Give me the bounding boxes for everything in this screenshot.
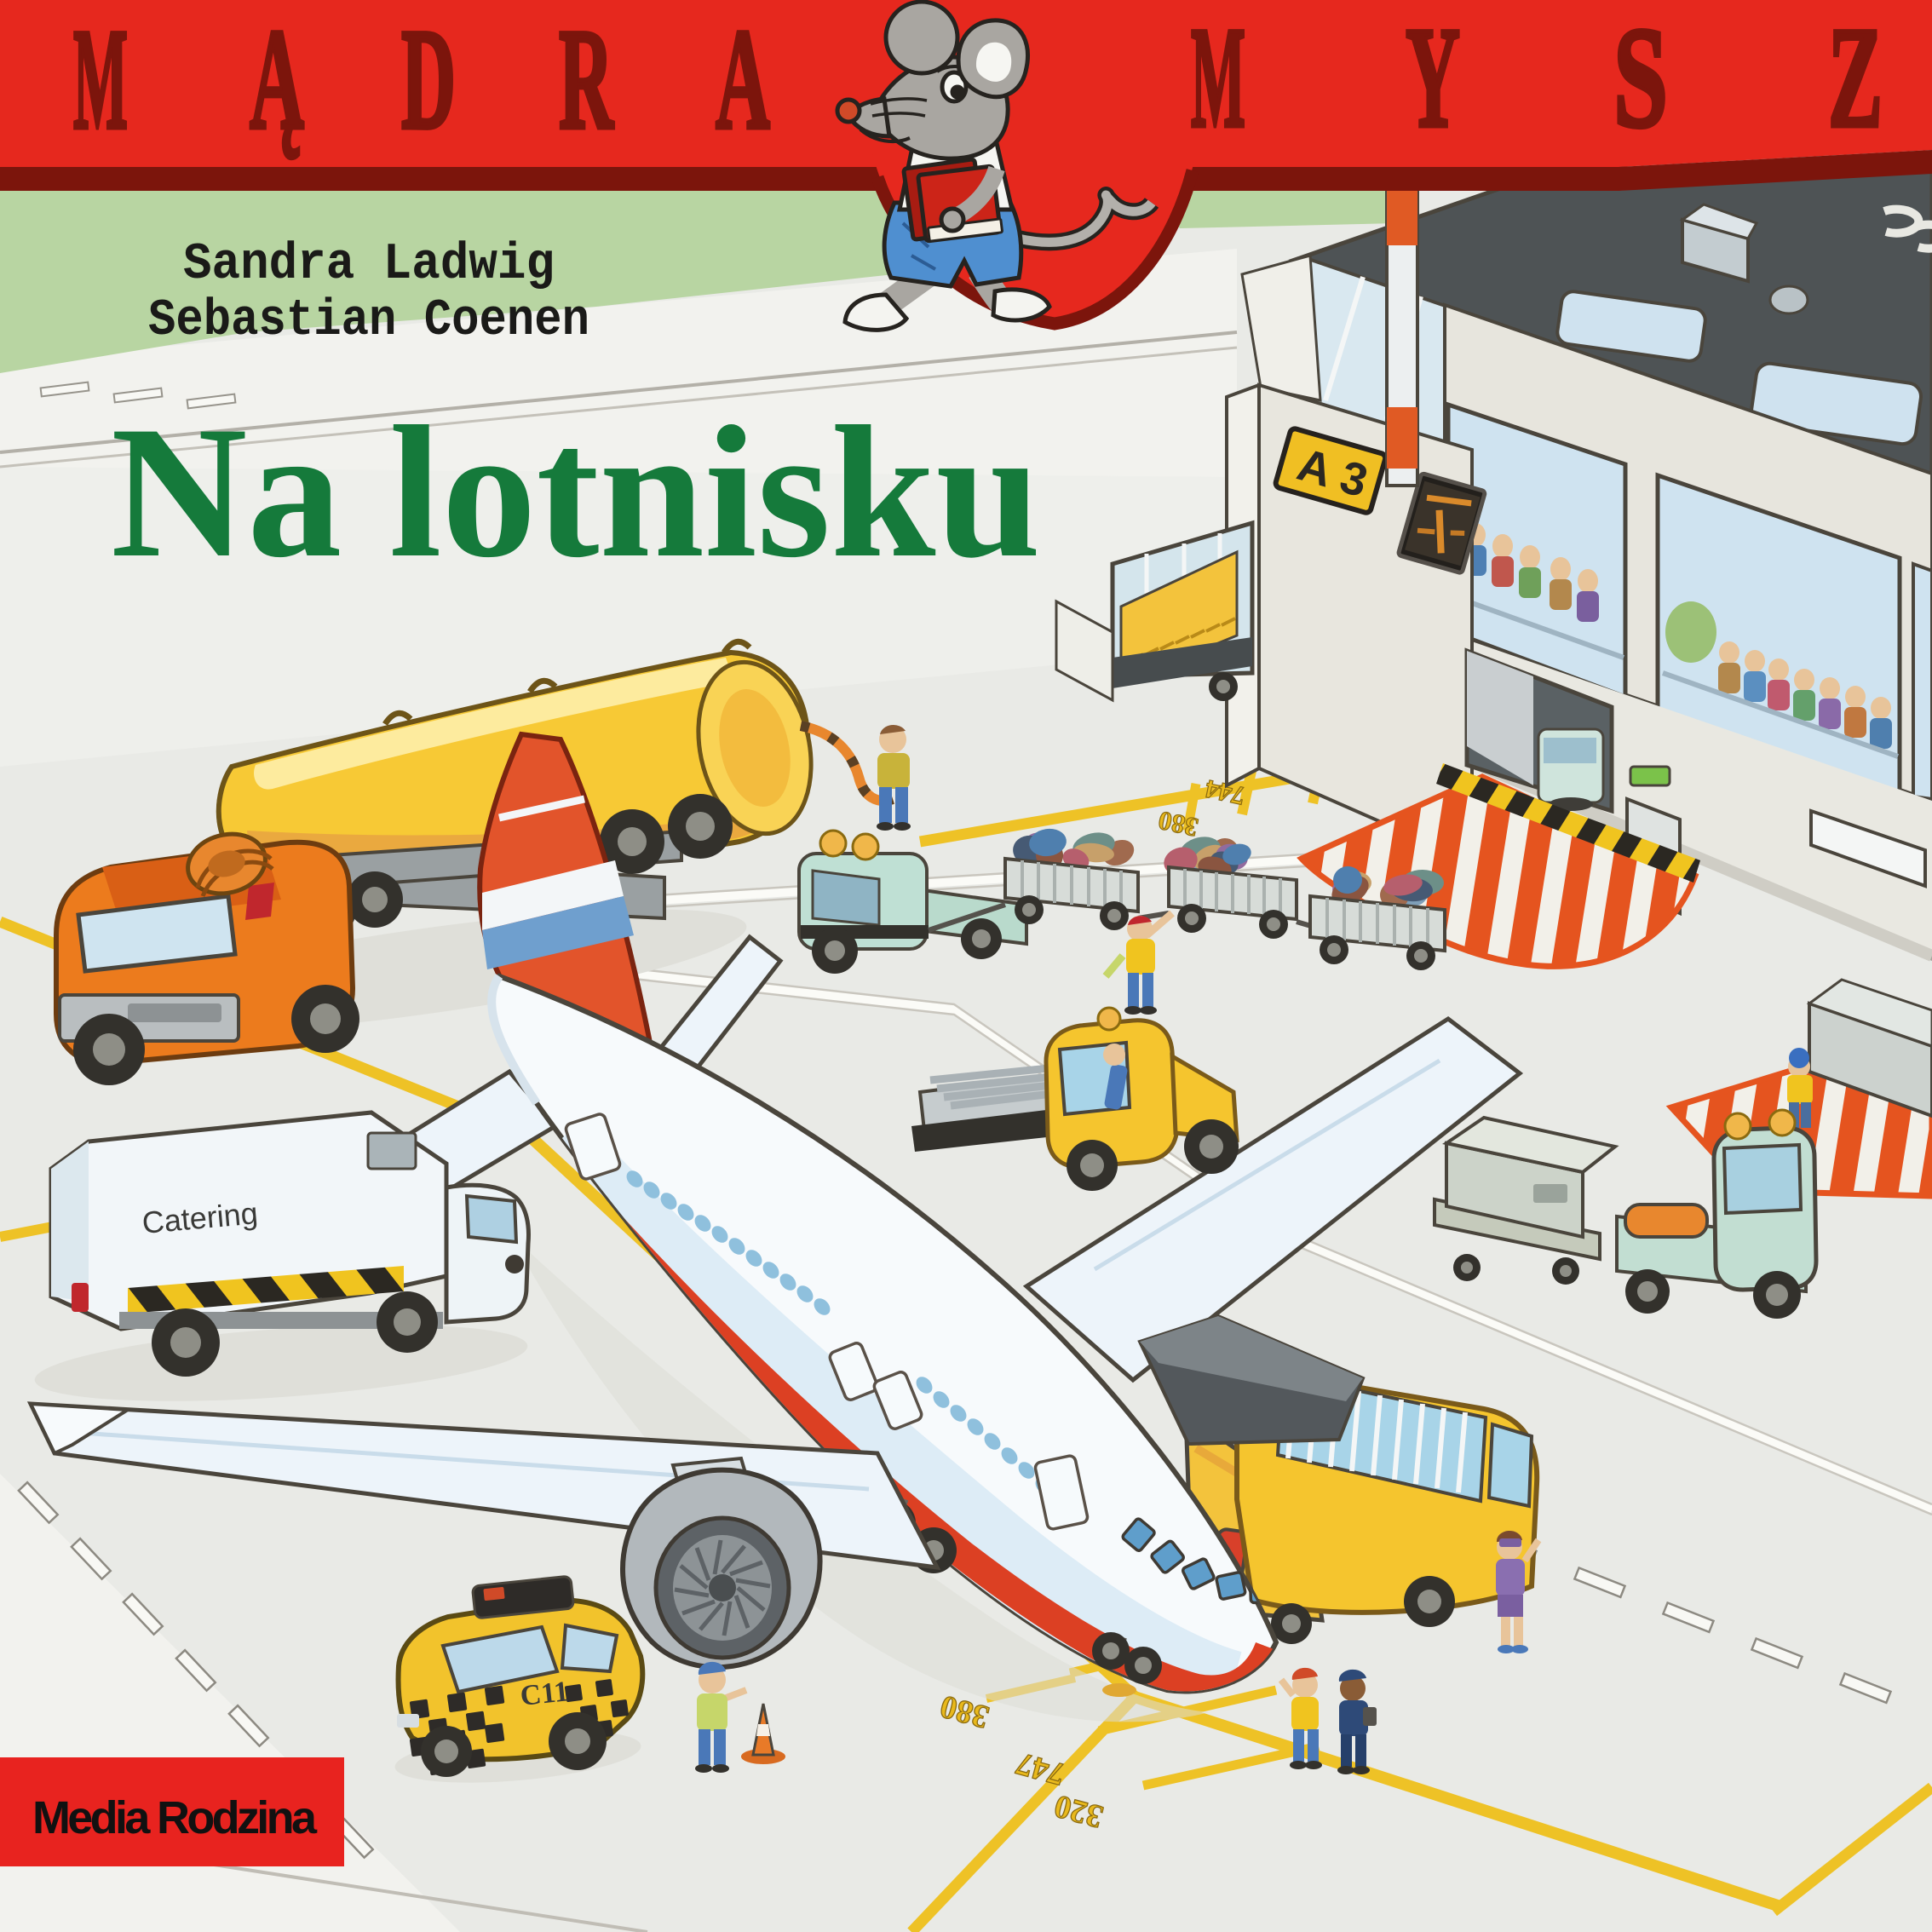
svg-text:Na lotnisku: Na lotnisku [111, 388, 1041, 597]
svg-text:S: S [1613, 0, 1668, 158]
svg-text:C11: C11 [519, 1676, 570, 1712]
svg-text:Sebastian Coenen: Sebastian Coenen [148, 292, 589, 350]
svg-text:Y: Y [1406, 0, 1460, 158]
svg-text:Ą: Ą [250, 0, 304, 159]
svg-text:Media Rodzina: Media Rodzina [32, 1792, 318, 1843]
svg-text:D: D [401, 0, 456, 159]
svg-text:A: A [716, 0, 770, 159]
svg-text:Z: Z [1828, 0, 1883, 158]
svg-text:R: R [559, 0, 614, 159]
svg-text:M: M [1191, 0, 1245, 158]
svg-text:Sandra Ladwig: Sandra Ladwig [183, 236, 555, 294]
svg-text:M: M [73, 0, 128, 159]
